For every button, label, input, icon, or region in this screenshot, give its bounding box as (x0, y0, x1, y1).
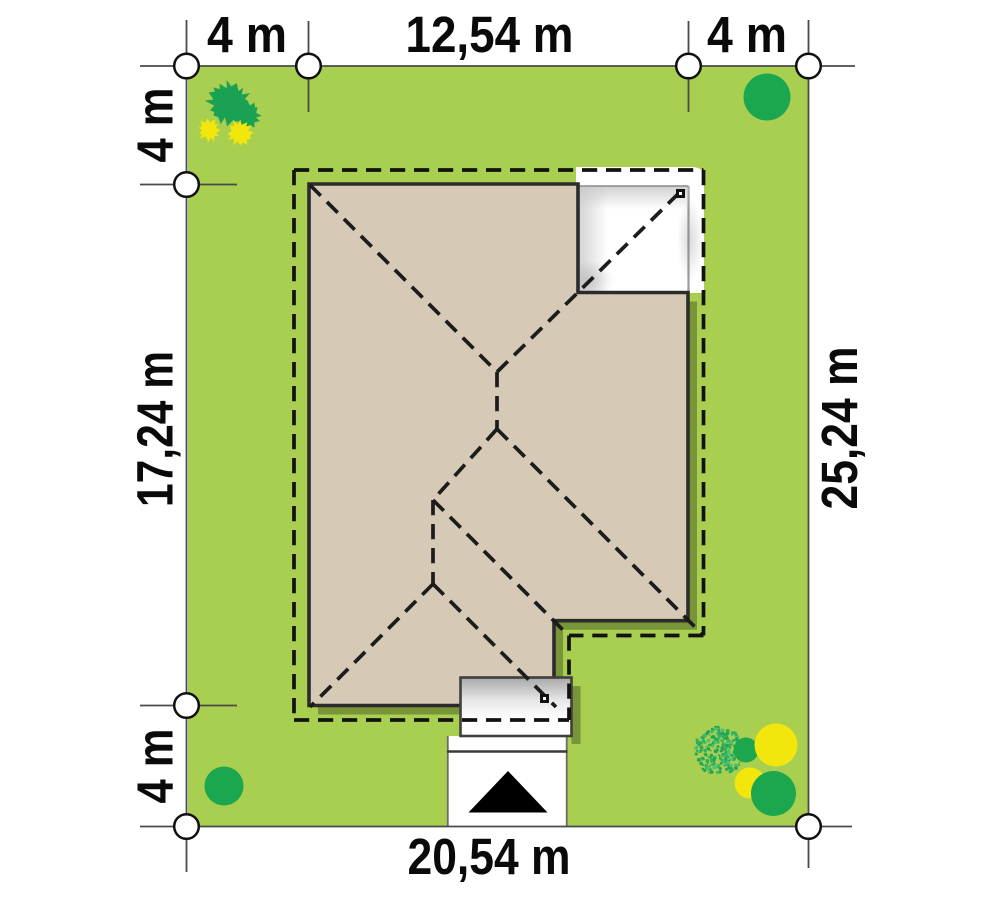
svg-text:4 m: 4 m (127, 88, 184, 163)
svg-text:25,24 m: 25,24 m (811, 347, 868, 510)
svg-text:20,54 m: 20,54 m (408, 828, 571, 885)
svg-text:17,24 m: 17,24 m (127, 351, 184, 507)
svg-text:4 m: 4 m (127, 729, 184, 804)
svg-text:4 m: 4 m (707, 6, 787, 63)
svg-text:12,54 m: 12,54 m (406, 6, 574, 63)
svg-text:4 m: 4 m (207, 6, 287, 63)
